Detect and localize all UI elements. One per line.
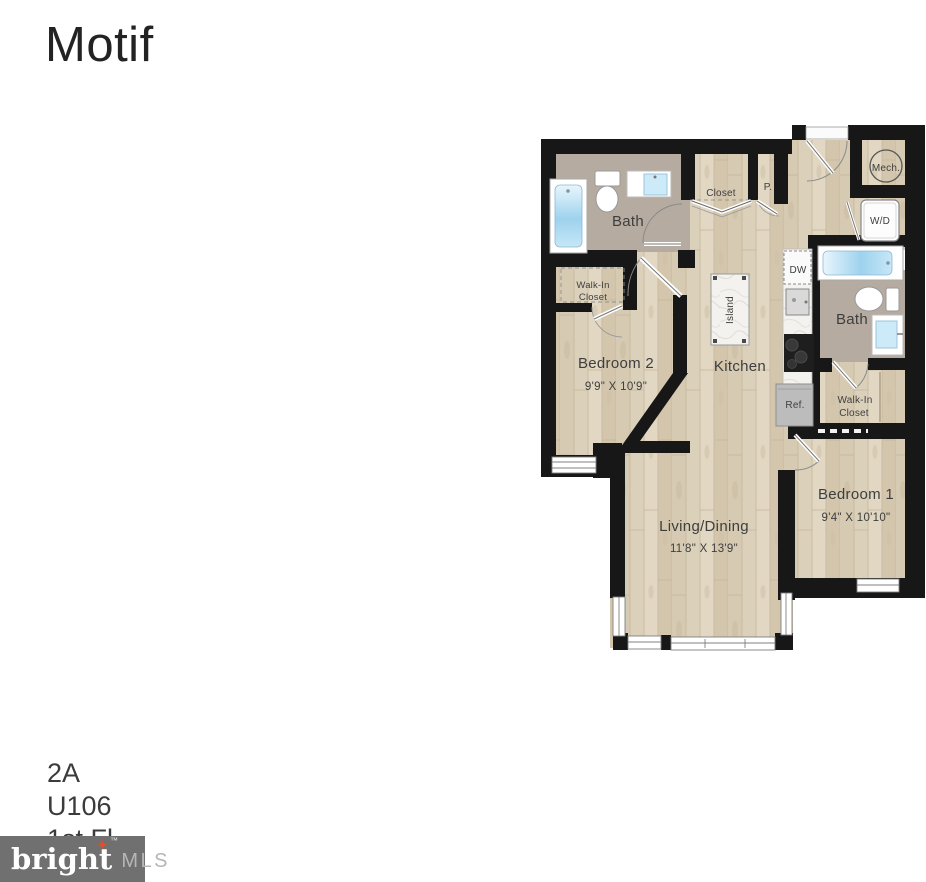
label-living-dims: 11'8" X 13'9" <box>670 543 738 555</box>
label-walkin-left-2: Closet <box>579 292 607 303</box>
label-bath-top: Bath <box>612 213 644 230</box>
window-bay-right <box>781 593 792 635</box>
bathtub-right <box>818 246 903 280</box>
toilet-right <box>855 287 899 311</box>
toilet-top <box>595 171 620 212</box>
label-walkin-left-1: Walk-In <box>576 280 609 291</box>
logo-trademark: ™ <box>110 837 118 845</box>
label-dw: DW <box>789 265 806 276</box>
window-bay-bottom-2 <box>671 637 775 650</box>
brightmls-logo: bright ✦ ™ MLS <box>0 836 145 882</box>
floors <box>556 140 907 648</box>
property-title: Motif <box>45 20 154 71</box>
label-bedroom2: Bedroom 2 <box>578 355 654 372</box>
label-living: Living/Dining <box>659 518 749 535</box>
kitchen-sink <box>786 289 809 315</box>
floor-living <box>610 430 793 648</box>
label-walkin-right-2: Closet <box>839 408 869 419</box>
label-mech: Mech. <box>872 163 900 174</box>
sink-top <box>627 171 671 197</box>
sink-right <box>872 315 903 355</box>
label-bedroom2-dims: 9'9" X 10'9" <box>585 381 647 393</box>
label-ref: Ref. <box>785 400 804 411</box>
stove <box>784 334 814 372</box>
unit-number: U106 <box>47 790 113 823</box>
window-bedroom1 <box>857 579 899 592</box>
label-pantry: P. <box>764 182 773 193</box>
label-walkin-right-1: Walk-In <box>838 395 873 406</box>
logo-suffix-text: MLS <box>121 847 170 871</box>
floorplan-page: Motif <box>0 0 926 882</box>
window-bay-left <box>613 597 625 636</box>
entry-threshold <box>806 127 848 139</box>
label-island: Island <box>725 296 736 324</box>
label-bath-right: Bath <box>836 311 868 328</box>
label-wd: W/D <box>870 216 890 227</box>
label-bedroom1: Bedroom 1 <box>818 486 894 503</box>
floor-plan: Bath Closet P. Mech. W/D Walk-In Closet … <box>541 125 926 660</box>
label-kitchen: Kitchen <box>714 358 766 375</box>
unit-plan: 2A <box>47 757 113 790</box>
label-bedroom1-dims: 9'4" X 10'10" <box>822 512 891 524</box>
bathtub-top <box>550 179 587 253</box>
window-bay-bottom-1 <box>628 636 661 649</box>
label-closet: Closet <box>706 188 736 199</box>
window-bedroom2 <box>552 457 596 473</box>
logo-star-icon: ✦ <box>96 838 109 853</box>
